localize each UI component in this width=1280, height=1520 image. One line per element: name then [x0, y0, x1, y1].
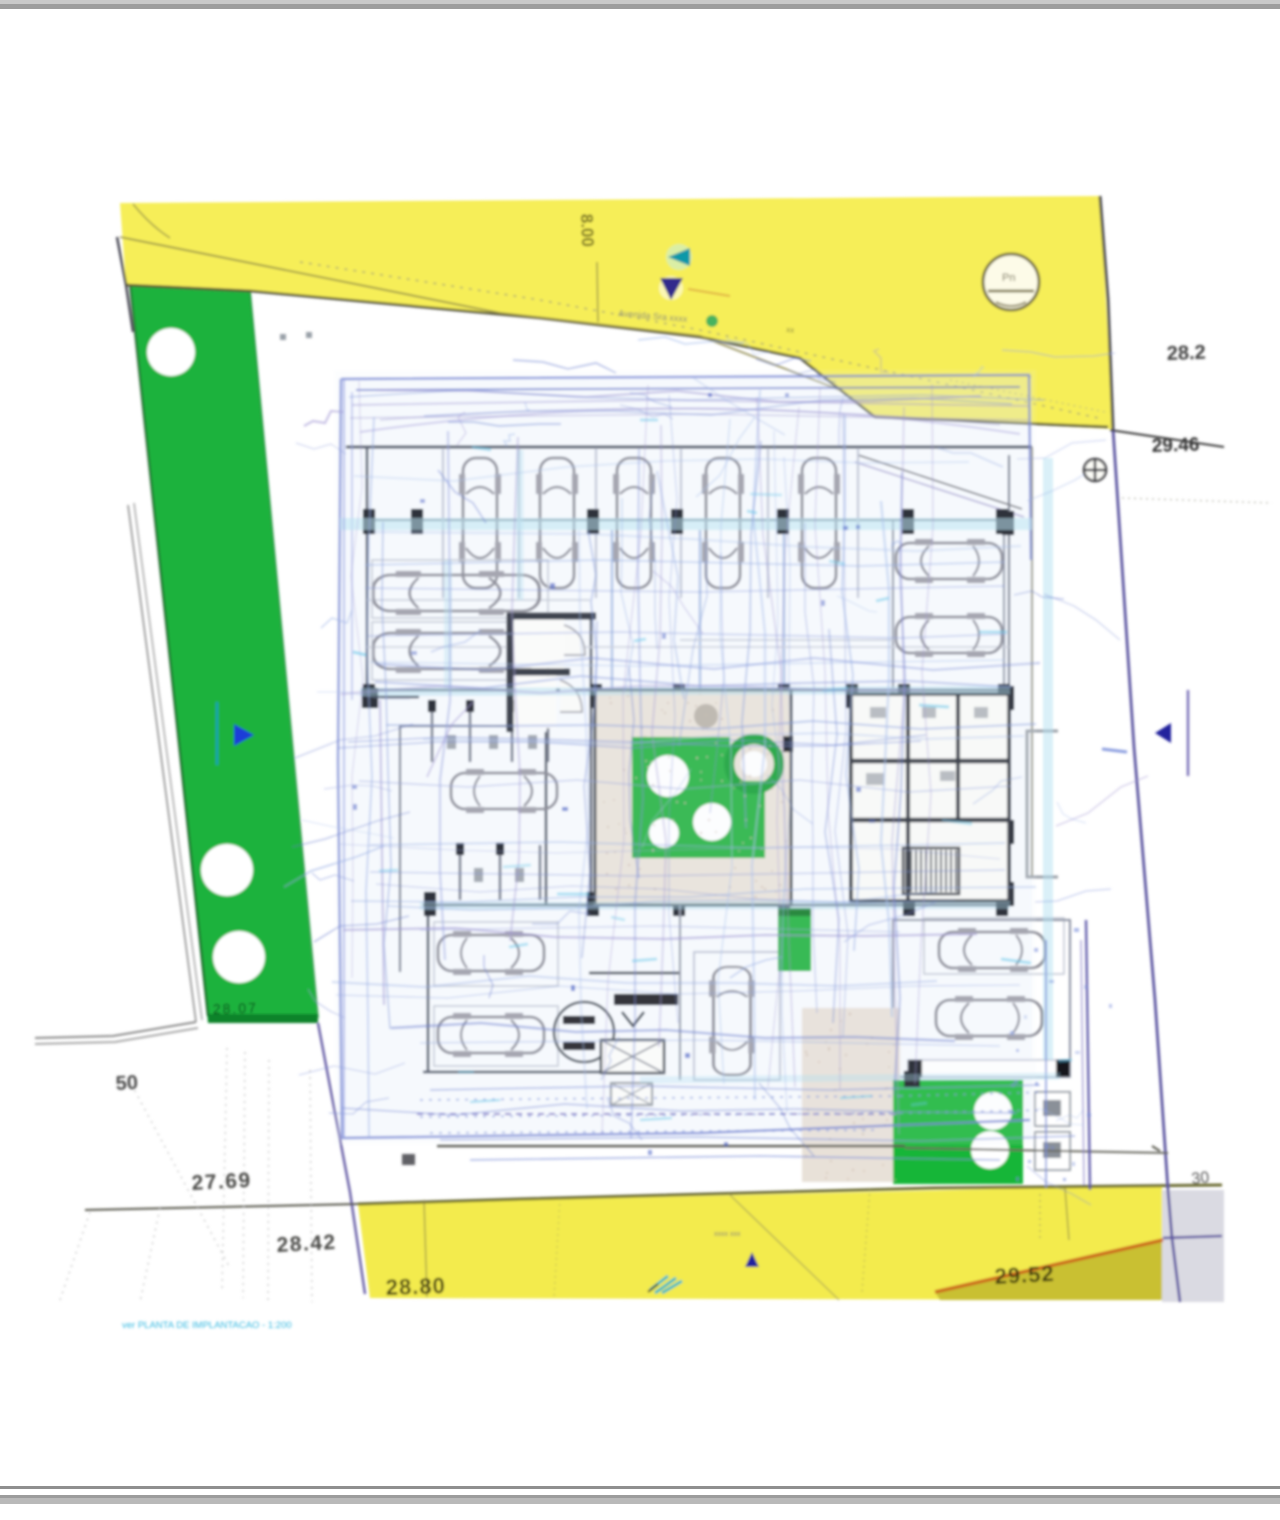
svg-text:Pn: Pn	[1002, 272, 1015, 284]
svg-text:8.00: 8.00	[577, 213, 597, 247]
svg-text:28.42: 28.42	[276, 1231, 337, 1257]
svg-text:50: 50	[115, 1072, 138, 1095]
svg-text:ver PLANTA DE IMPLANTACAO: ver PLANTA DE IMPLANTACAO - 1:200	[122, 1320, 292, 1331]
svg-text:29.52: 29.52	[994, 1261, 1055, 1289]
svg-text:xx: xx	[786, 325, 795, 335]
svg-text:28.07: 28.07	[213, 999, 259, 1017]
svg-text:27.69: 27.69	[191, 1169, 252, 1195]
svg-text:xxxx xxx: xxxx xxx	[714, 1231, 741, 1238]
svg-text:28.2: 28.2	[1166, 342, 1206, 365]
svg-text:28.80: 28.80	[385, 1273, 446, 1300]
svg-text:30: 30	[1191, 1169, 1211, 1188]
